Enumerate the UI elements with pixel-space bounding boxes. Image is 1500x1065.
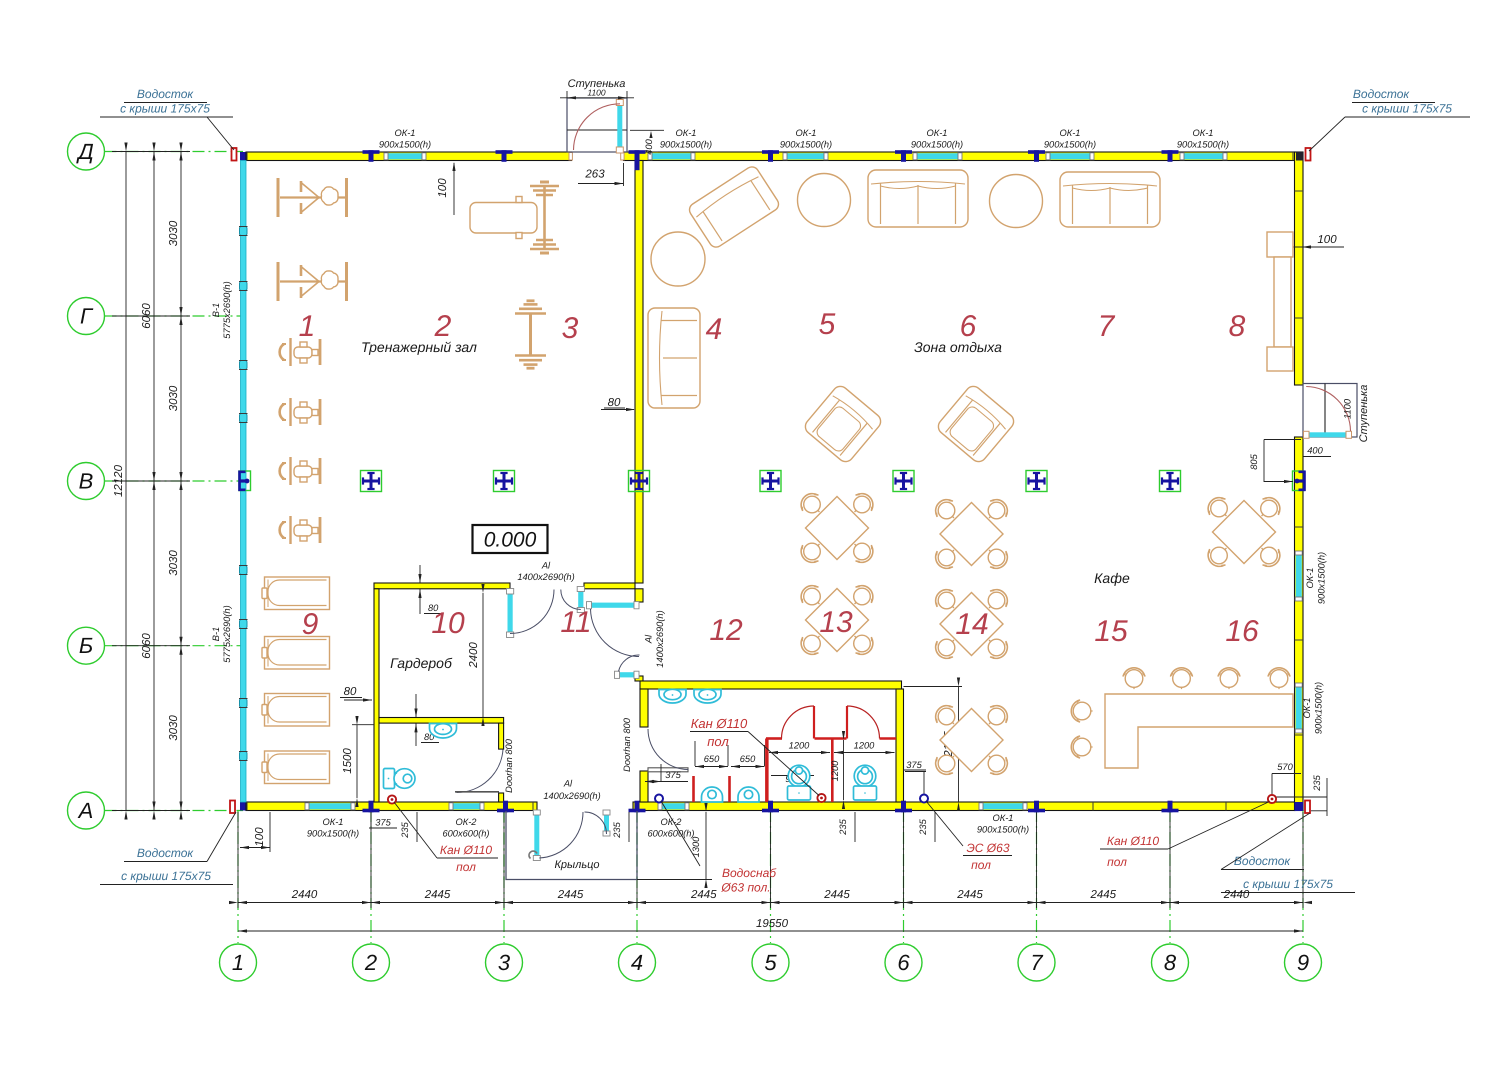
svg-text:2440: 2440 (291, 889, 318, 901)
svg-text:235: 235 (918, 818, 928, 835)
svg-text:В-1: В-1 (211, 627, 221, 641)
svg-text:пол: пол (456, 860, 476, 874)
svg-text:900х1500(h): 900х1500(h) (911, 140, 963, 150)
svg-text:900х1500(h): 900х1500(h) (977, 825, 1029, 835)
svg-text:100: 100 (437, 178, 449, 198)
svg-text:2400: 2400 (468, 642, 480, 669)
svg-text:7: 7 (1030, 950, 1043, 975)
svg-text:ОК-1: ОК-1 (1302, 698, 1312, 719)
svg-text:2445: 2445 (956, 889, 983, 901)
svg-text:пол: пол (971, 858, 991, 872)
svg-text:4: 4 (631, 950, 643, 975)
svg-text:1100: 1100 (587, 88, 606, 98)
svg-text:10: 10 (431, 607, 465, 640)
svg-text:Кафе: Кафе (1094, 570, 1130, 586)
svg-text:с крыши 175х75: с крыши 175х75 (120, 102, 210, 116)
svg-text:1200: 1200 (830, 760, 840, 782)
svg-text:570: 570 (1277, 762, 1293, 772)
svg-text:2445: 2445 (1089, 889, 1116, 901)
svg-text:Кан Ø110: Кан Ø110 (691, 716, 748, 731)
svg-text:1200: 1200 (789, 741, 811, 751)
svg-text:Водосток: Водосток (1353, 87, 1411, 101)
svg-text:с крыши 175х75: с крыши 175х75 (1362, 102, 1452, 116)
svg-text:Кан Ø110: Кан Ø110 (1107, 834, 1159, 848)
svg-text:с крыши 175х75: с крыши 175х75 (1243, 877, 1333, 891)
svg-text:3: 3 (562, 312, 579, 345)
svg-text:235: 235 (1312, 774, 1322, 791)
svg-text:ОК-1: ОК-1 (993, 813, 1014, 823)
svg-text:ОК-1: ОК-1 (796, 128, 817, 138)
svg-text:1: 1 (232, 950, 244, 975)
svg-text:5775х2690(h): 5775х2690(h) (222, 281, 232, 338)
svg-text:80: 80 (608, 397, 621, 409)
svg-text:с крыши 175х75: с крыши 175х75 (121, 869, 211, 883)
svg-text:Крыльцо: Крыльцо (554, 859, 599, 871)
svg-text:900х1500(h): 900х1500(h) (1044, 140, 1096, 150)
svg-text:А: А (77, 798, 94, 823)
svg-text:14: 14 (955, 608, 988, 641)
svg-text:375: 375 (375, 818, 391, 828)
svg-text:12120: 12120 (113, 464, 125, 497)
svg-text:900х1500(h): 900х1500(h) (780, 140, 832, 150)
svg-text:Водосток: Водосток (137, 846, 195, 860)
svg-text:ОК-1: ОК-1 (1305, 568, 1315, 589)
svg-text:1500: 1500 (342, 748, 354, 774)
svg-text:13: 13 (819, 606, 853, 639)
svg-text:2445: 2445 (557, 889, 584, 901)
svg-text:8: 8 (1229, 310, 1246, 343)
svg-text:3030: 3030 (168, 550, 180, 576)
svg-text:Al: Al (644, 634, 654, 644)
svg-text:Водоснаб: Водоснаб (722, 866, 777, 880)
svg-text:235: 235 (838, 818, 848, 835)
svg-text:1: 1 (299, 310, 316, 343)
svg-text:Гардероб: Гардероб (390, 655, 453, 671)
svg-text:Д: Д (75, 139, 94, 164)
svg-text:Кан Ø110: Кан Ø110 (440, 843, 492, 857)
svg-text:80: 80 (344, 686, 357, 698)
svg-text:пол: пол (707, 734, 729, 749)
svg-text:100: 100 (254, 827, 266, 847)
svg-text:5775х2690(h): 5775х2690(h) (222, 605, 232, 662)
svg-text:Al: Al (541, 561, 551, 571)
svg-text:4: 4 (706, 313, 723, 346)
svg-text:Doorhan 800: Doorhan 800 (504, 738, 514, 793)
svg-text:900х1500(h): 900х1500(h) (307, 829, 359, 839)
svg-text:263: 263 (584, 169, 605, 181)
svg-text:3030: 3030 (168, 385, 180, 411)
svg-text:11: 11 (560, 606, 591, 639)
svg-text:375: 375 (906, 760, 922, 770)
svg-text:2445: 2445 (690, 889, 717, 901)
svg-text:3030: 3030 (168, 715, 180, 741)
svg-text:9: 9 (302, 608, 319, 641)
svg-text:600х600(h): 600х600(h) (647, 829, 694, 839)
svg-text:ОК-1: ОК-1 (927, 128, 948, 138)
svg-text:5: 5 (819, 308, 836, 341)
svg-text:3030: 3030 (168, 220, 180, 246)
svg-text:1400х2690(h): 1400х2690(h) (517, 572, 574, 582)
svg-text:2: 2 (434, 310, 452, 343)
svg-text:2: 2 (364, 950, 377, 975)
svg-text:Б: Б (79, 633, 93, 658)
svg-text:900х1500(h): 900х1500(h) (379, 140, 431, 150)
svg-text:9: 9 (1297, 950, 1309, 975)
svg-text:ОК-1: ОК-1 (323, 817, 344, 827)
svg-text:6060: 6060 (141, 633, 153, 659)
svg-text:235: 235 (400, 821, 410, 838)
svg-text:ЭС Ø63: ЭС Ø63 (966, 841, 1009, 855)
svg-text:ОК-2: ОК-2 (456, 817, 478, 827)
svg-text:2445: 2445 (823, 889, 850, 901)
svg-text:3: 3 (498, 950, 511, 975)
svg-text:100: 100 (1317, 234, 1337, 246)
svg-text:6060: 6060 (141, 303, 153, 329)
svg-text:900х1500(h): 900х1500(h) (1317, 552, 1327, 604)
svg-text:650: 650 (740, 754, 756, 764)
svg-text:12: 12 (709, 614, 743, 647)
svg-text:6: 6 (960, 310, 977, 343)
svg-text:900х1500(h): 900х1500(h) (1177, 140, 1229, 150)
svg-text:400: 400 (1307, 446, 1323, 456)
svg-text:ОК-1: ОК-1 (395, 128, 416, 138)
svg-text:Ø63 пол.: Ø63 пол. (720, 881, 770, 895)
svg-text:Тренажерный зал: Тренажерный зал (361, 339, 477, 355)
svg-text:7: 7 (1098, 310, 1116, 343)
svg-text:1400х2690(h): 1400х2690(h) (543, 791, 600, 801)
svg-text:0.000: 0.000 (484, 529, 537, 552)
svg-text:900х1500(h): 900х1500(h) (1314, 682, 1324, 734)
svg-text:В: В (79, 469, 94, 494)
svg-text:1200: 1200 (854, 741, 876, 751)
svg-text:1100: 1100 (1343, 398, 1353, 419)
svg-text:900х1500(h): 900х1500(h) (660, 140, 712, 150)
svg-text:600х600(h): 600х600(h) (442, 829, 489, 839)
svg-text:235: 235 (612, 821, 622, 838)
svg-text:Г: Г (80, 304, 94, 329)
svg-text:16: 16 (1225, 615, 1259, 648)
svg-text:Зона отдыха: Зона отдыха (914, 339, 1002, 355)
svg-text:Doorhan 800: Doorhan 800 (622, 717, 632, 772)
svg-text:1400х2690(h): 1400х2690(h) (655, 610, 665, 667)
svg-text:2445: 2445 (424, 889, 451, 901)
svg-text:Al: Al (563, 779, 573, 789)
svg-text:5: 5 (764, 950, 777, 975)
svg-text:805: 805 (1249, 453, 1259, 469)
svg-text:8: 8 (1164, 950, 1177, 975)
svg-text:Водосток: Водосток (137, 87, 195, 101)
svg-text:пол: пол (1107, 855, 1127, 869)
svg-text:6: 6 (897, 950, 910, 975)
svg-text:ОК-1: ОК-1 (676, 128, 697, 138)
svg-text:Ступенька: Ступенька (1358, 385, 1370, 443)
svg-text:В-1: В-1 (211, 303, 221, 317)
svg-text:19550: 19550 (756, 918, 789, 930)
svg-text:15: 15 (1094, 615, 1128, 648)
svg-text:ОК-1: ОК-1 (1193, 128, 1214, 138)
svg-text:375: 375 (665, 770, 681, 780)
svg-text:ОК-1: ОК-1 (1060, 128, 1081, 138)
svg-text:650: 650 (704, 754, 720, 764)
